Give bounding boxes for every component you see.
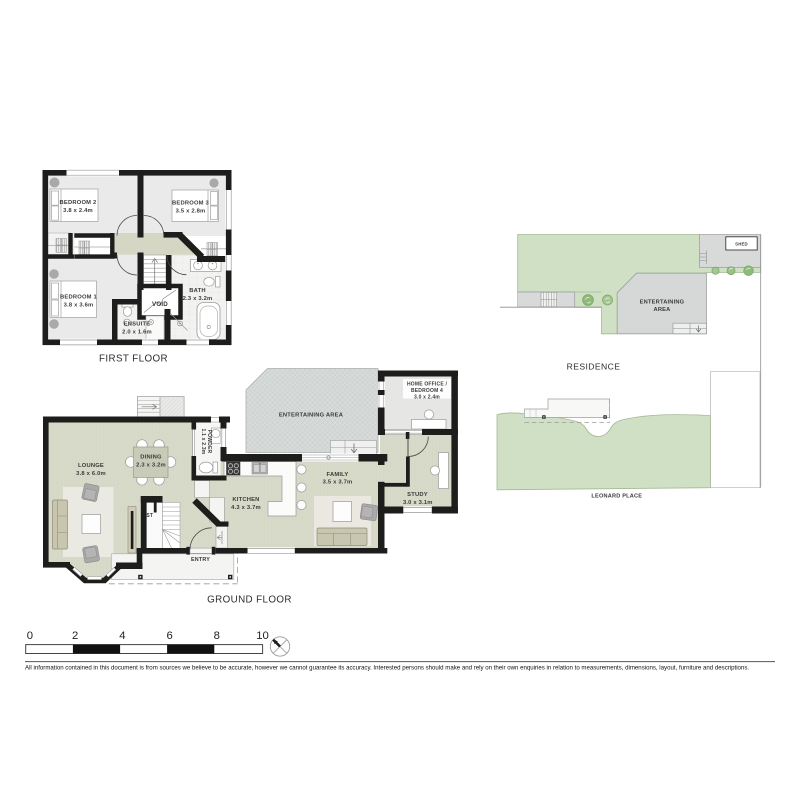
svg-text:KITCHEN: KITCHEN <box>232 497 259 503</box>
svg-text:All information contained in t: All information contained in this docume… <box>25 665 749 672</box>
svg-text:ST: ST <box>146 513 153 519</box>
svg-text:GROUND FLOOR: GROUND FLOOR <box>207 595 292 606</box>
svg-text:ENTERTAINING: ENTERTAINING <box>640 300 685 306</box>
svg-text:6: 6 <box>166 630 172 642</box>
svg-text:LEONARD PLACE: LEONARD PLACE <box>591 494 642 500</box>
svg-text:ENTRY: ENTRY <box>191 557 210 563</box>
svg-text:3.8 x 3.6m: 3.8 x 3.6m <box>64 303 94 309</box>
svg-text:0: 0 <box>27 630 33 642</box>
svg-text:1.1 x 2.3m: 1.1 x 2.3m <box>200 429 206 455</box>
svg-text:2.3 x 3.2m: 2.3 x 3.2m <box>136 463 166 469</box>
svg-text:4.3 x 3.7m: 4.3 x 3.7m <box>231 505 261 511</box>
svg-text:3.8 x 2.4m: 3.8 x 2.4m <box>63 208 93 214</box>
svg-text:3.5 x 3.7m: 3.5 x 3.7m <box>323 480 353 486</box>
svg-text:POWDER: POWDER <box>206 430 212 454</box>
svg-text:SHED: SHED <box>735 241 748 246</box>
svg-text:2.0 x 1.6m: 2.0 x 1.6m <box>122 330 152 336</box>
svg-text:BEDROOM 4: BEDROOM 4 <box>411 388 443 394</box>
svg-text:4: 4 <box>119 630 125 642</box>
svg-text:STUDY: STUDY <box>407 492 428 498</box>
svg-text:3.5 x 2.8m: 3.5 x 2.8m <box>176 209 206 215</box>
svg-text:10: 10 <box>256 630 269 642</box>
svg-text:ENSUITE: ENSUITE <box>124 322 151 328</box>
svg-text:2: 2 <box>72 630 78 642</box>
svg-text:LOUNGE: LOUNGE <box>78 463 104 469</box>
svg-text:BEDROOM 1: BEDROOM 1 <box>60 295 97 301</box>
svg-text:3.8 x 6.0m: 3.8 x 6.0m <box>76 471 106 477</box>
svg-text:RESIDENCE: RESIDENCE <box>567 361 621 371</box>
svg-text:2.3 x 3.2m: 2.3 x 3.2m <box>183 296 213 302</box>
svg-text:ENTERTAINING AREA: ENTERTAINING AREA <box>279 413 344 419</box>
svg-text:HOME OFFICE /: HOME OFFICE / <box>407 382 448 388</box>
svg-text:FIRST FLOOR: FIRST FLOOR <box>99 354 168 365</box>
svg-text:AREA: AREA <box>654 307 671 313</box>
svg-text:3.0 x 3.1m: 3.0 x 3.1m <box>403 500 433 506</box>
svg-text:BEDROOM 2: BEDROOM 2 <box>60 200 97 206</box>
svg-text:VOID: VOID <box>152 301 168 308</box>
svg-text:3.0 x 2.4m: 3.0 x 2.4m <box>414 395 440 401</box>
svg-text:FAMILY: FAMILY <box>327 472 349 478</box>
svg-text:8: 8 <box>214 630 220 642</box>
svg-text:BEDROOM 3: BEDROOM 3 <box>172 201 209 207</box>
svg-text:BATH: BATH <box>189 288 205 294</box>
svg-text:DINING: DINING <box>140 455 162 461</box>
